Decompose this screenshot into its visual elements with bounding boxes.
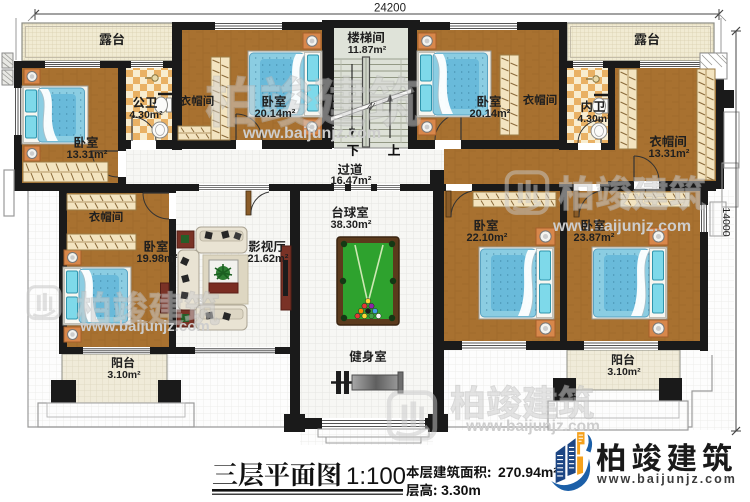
svg-text:11.87m²: 11.87m² xyxy=(348,44,387,56)
svg-text:3.10m²: 3.10m² xyxy=(107,369,141,381)
svg-text:4.30m²: 4.30m² xyxy=(129,109,163,121)
svg-text:270.94m²: 270.94m² xyxy=(498,464,558,480)
svg-text:20.14m²: 20.14m² xyxy=(255,108,296,120)
svg-text:16.47m²: 16.47m² xyxy=(331,175,372,187)
svg-text:22.10m²: 22.10m² xyxy=(467,232,508,244)
svg-text:4.30m²: 4.30m² xyxy=(577,113,611,125)
svg-text:13.31m²: 13.31m² xyxy=(67,149,108,161)
svg-text:3.30m: 3.30m xyxy=(441,482,481,498)
svg-text:24200: 24200 xyxy=(374,3,406,15)
svg-text:23.87m²: 23.87m² xyxy=(574,232,615,244)
svg-text:14000: 14000 xyxy=(720,207,732,236)
svg-text:www.baijunjz.com: www.baijunjz.com xyxy=(596,472,737,486)
svg-text:3.10m²: 3.10m² xyxy=(607,366,641,378)
svg-text:www.baijunjz.com: www.baijunjz.com xyxy=(79,318,209,335)
svg-text:www.baijunjz.com: www.baijunjz.com xyxy=(242,125,381,142)
svg-text:21.62m²: 21.62m² xyxy=(248,253,289,265)
svg-text:20.14m²: 20.14m² xyxy=(470,108,511,120)
svg-text:38.30m²: 38.30m² xyxy=(331,219,372,231)
svg-text:13.31m²: 13.31m² xyxy=(649,148,690,160)
svg-text:19.98m²: 19.98m² xyxy=(137,253,178,265)
svg-text:1:100: 1:100 xyxy=(346,463,406,490)
